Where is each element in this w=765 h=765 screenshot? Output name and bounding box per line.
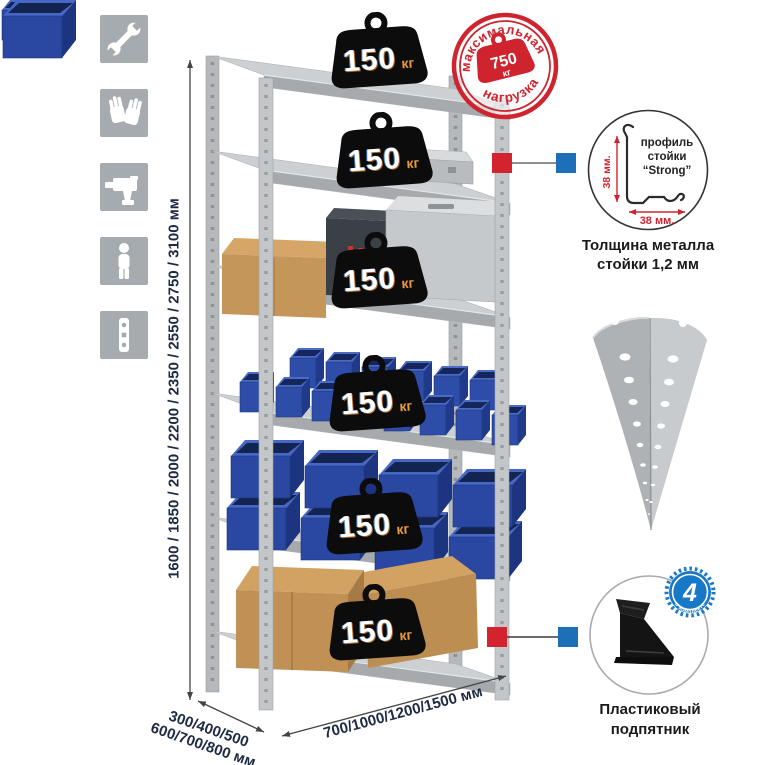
perforated-profile-icon [100, 311, 148, 359]
red-marker-bottom [487, 627, 507, 647]
person-icon [100, 237, 148, 285]
profile-label-line3: “Strong” [643, 165, 692, 177]
shelf-load-weight-1: 150кг [317, 8, 438, 96]
shelving-product-infographic: 1600 / 1850 / 2000 / 2200 / 2350 / 2550 … [0, 0, 765, 765]
metal-thickness-note: Толщина металла стойки 1,2 мм [558, 236, 738, 274]
gloves-icon [100, 89, 148, 137]
drill-icon [100, 163, 148, 211]
post-profile-detail: 38 мм. 38 мм. профиль стойки “Strong” [586, 108, 710, 232]
shelf-load-weight-4: 150кг [315, 351, 436, 439]
badge-value: 4 [682, 579, 697, 607]
included-count-badge: в комплекте 4 [664, 566, 716, 618]
blue-marker-top [556, 153, 576, 173]
callout-connector-bottom [487, 627, 578, 647]
shelf-load-weight-2: 150кг [322, 108, 443, 196]
plastic-foot-caption: Пластиковый подпятник [570, 700, 730, 740]
shelf-load-weight-6: 150кг [315, 580, 436, 668]
profile-label-line1: профиль [641, 137, 694, 149]
callout-connector-top [492, 153, 576, 173]
shelf-load-weight-3: 150кг [317, 228, 438, 316]
profile-dim-horizontal: 38 мм. [640, 215, 675, 227]
profile-label-line2: стойки [648, 151, 687, 163]
shelf-load-weight-5: 150кг [312, 474, 433, 562]
blue-marker-bottom [558, 627, 578, 647]
max-load-stamp: максимальная нагрузка 750 кг [447, 8, 563, 124]
perforated-angle-post [585, 302, 715, 537]
red-marker-top [492, 153, 512, 173]
height-dimension-label: 1600 / 1850 / 2000 / 2200 / 2350 / 2550 … [166, 179, 183, 599]
profile-dim-vertical: 38 мм. [601, 155, 613, 188]
wrench-icon [100, 15, 148, 63]
